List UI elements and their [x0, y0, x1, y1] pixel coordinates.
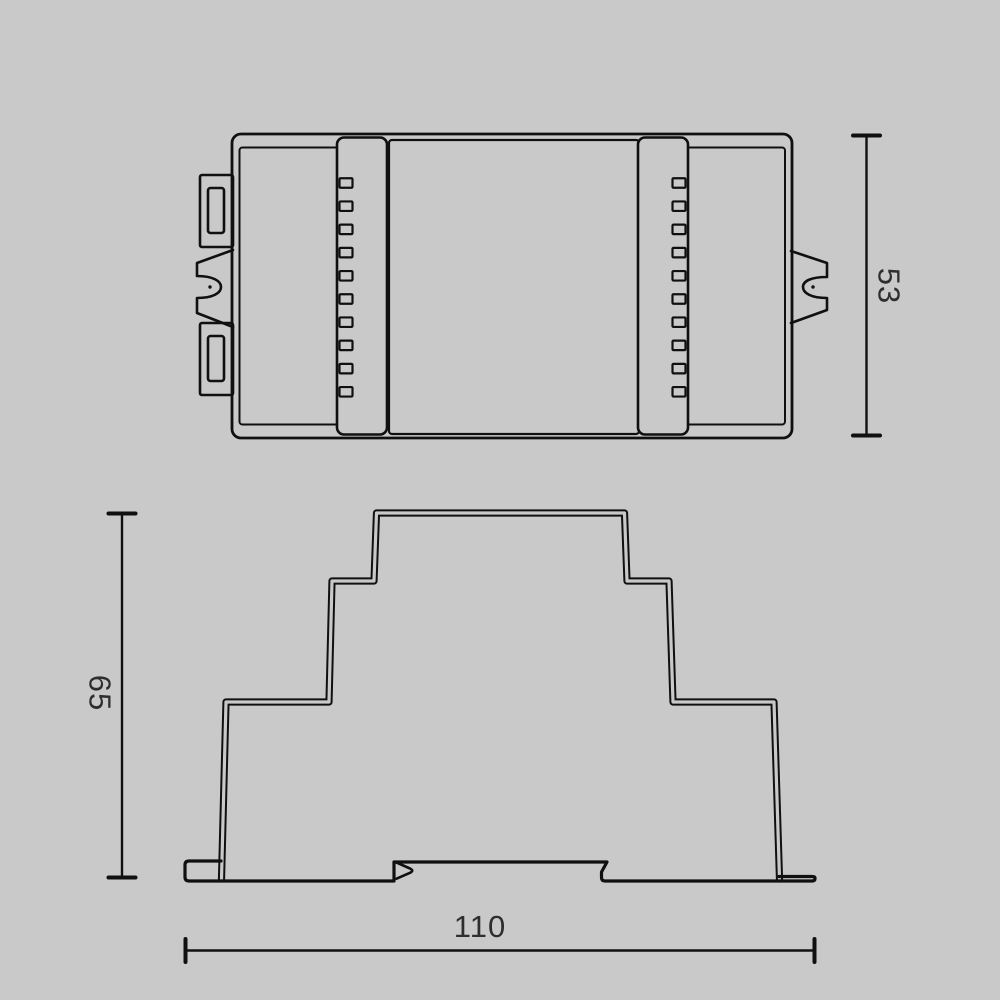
terminal-tooth [340, 225, 353, 235]
terminal-tooth [673, 225, 686, 235]
terminal-tooth [340, 341, 353, 351]
terminal-tooth [340, 248, 353, 258]
terminal-tooth [340, 317, 353, 327]
din-ear-left-center-mark [208, 285, 211, 288]
terminal-tooth [673, 317, 686, 327]
terminal-tooth [673, 201, 686, 211]
dim-label-110: 110 [454, 909, 506, 944]
central-block [389, 140, 639, 434]
dim-label-65: 65 [83, 675, 118, 711]
terminal-tooth [340, 294, 353, 304]
technical-drawing: 53 65 110 [0, 0, 1000, 1000]
terminal-tooth [673, 271, 686, 281]
dim-label-53: 53 [872, 268, 907, 304]
terminal-tooth [673, 294, 686, 304]
terminal-tooth [673, 364, 686, 374]
terminal-tooth [673, 387, 686, 397]
terminal-tooth [340, 271, 353, 281]
terminal-tooth [340, 387, 353, 397]
terminal-tooth [673, 178, 686, 188]
terminal-tooth [340, 178, 353, 188]
terminal-tooth [673, 248, 686, 258]
din-ear-right-center-mark [811, 285, 814, 288]
terminal-tooth [340, 364, 353, 374]
terminal-tooth [340, 201, 353, 211]
terminal-tooth [673, 341, 686, 351]
